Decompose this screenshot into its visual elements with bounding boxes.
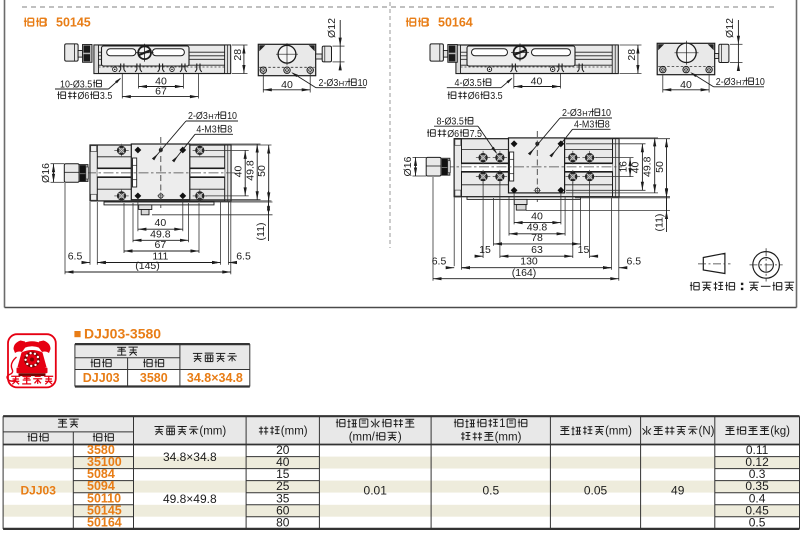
svg-text:DJJ03: DJJ03 [83,371,120,385]
svg-text:Ø12: Ø12 [326,18,338,38]
svg-text:2-Ø3: 2-Ø3 [562,107,582,119]
svg-text:40: 40 [233,166,245,178]
svg-text:DJJ03-3580: DJJ03-3580 [84,326,161,342]
svg-text:34.8×34.8: 34.8×34.8 [187,371,243,385]
svg-text:80: 80 [276,515,290,529]
svg-text:67: 67 [155,239,167,251]
svg-text:50145: 50145 [56,16,91,30]
svg-text:6.5: 6.5 [236,251,251,263]
svg-text:63: 63 [531,244,543,256]
svg-text:H7: H7 [208,112,218,121]
svg-text:50164: 50164 [438,16,473,30]
svg-text:(kg): (kg) [770,426,790,438]
svg-text:49.8: 49.8 [244,160,256,181]
svg-text:8-Ø3.5: 8-Ø3.5 [437,116,464,128]
svg-text:67: 67 [155,86,167,98]
svg-text:50: 50 [654,161,666,173]
svg-text:10: 10 [755,76,765,88]
svg-text:Ø16: Ø16 [402,156,414,176]
svg-text:(mm): (mm) [199,426,226,438]
svg-text:10: 10 [601,107,611,119]
svg-text:Ø6: Ø6 [78,90,90,102]
svg-text:(164): (164) [512,267,537,279]
svg-text:16: 16 [618,161,629,173]
svg-text:3.5: 3.5 [490,90,503,102]
svg-text:15: 15 [479,244,491,256]
svg-text:(145): (145) [135,260,160,272]
svg-text:8: 8 [227,124,232,136]
svg-text:2-Ø3: 2-Ø3 [188,110,208,122]
svg-text:Ø12: Ø12 [724,18,736,38]
svg-text:40: 40 [680,79,692,91]
svg-text:(mm): (mm) [281,426,308,438]
svg-text:28: 28 [232,49,244,61]
svg-text:40: 40 [281,79,293,91]
svg-text:1: 1 [499,418,505,430]
svg-text:3580: 3580 [140,371,168,385]
svg-text:H7: H7 [582,109,592,118]
svg-text:49: 49 [671,483,685,497]
svg-text:50164: 50164 [87,515,122,529]
svg-text:4-Ø3.5: 4-Ø3.5 [455,77,482,89]
svg-text:10: 10 [227,110,237,122]
svg-text:6.5: 6.5 [626,256,641,268]
svg-text:34.8×34.8: 34.8×34.8 [163,450,217,464]
svg-text:49.8: 49.8 [642,156,654,177]
svg-text:49.8×49.8: 49.8×49.8 [163,492,217,506]
svg-text:2-Ø3: 2-Ø3 [716,76,736,88]
svg-text:78: 78 [531,232,543,244]
svg-text:15: 15 [578,244,590,256]
svg-text:(mm): (mm) [495,431,522,443]
svg-text:2-Ø3: 2-Ø3 [319,77,339,89]
svg-text:(11): (11) [255,223,267,241]
svg-text:0.5: 0.5 [749,515,766,529]
svg-text:8: 8 [605,119,610,131]
svg-text:): ) [398,431,402,443]
svg-text:(11): (11) [654,214,666,232]
svg-text:130: 130 [520,256,538,268]
svg-text:0.5: 0.5 [482,483,499,497]
svg-text:28: 28 [626,49,638,61]
svg-text:4-M3: 4-M3 [196,124,216,136]
svg-text:H7: H7 [736,78,746,87]
svg-text:0.01: 0.01 [364,483,388,497]
svg-text:Ø6: Ø6 [468,90,480,102]
svg-text:3.5: 3.5 [100,90,113,102]
svg-text:DJJ03: DJJ03 [21,483,57,497]
svg-text:Ø16: Ø16 [40,163,52,183]
svg-text:6.5: 6.5 [432,256,447,268]
svg-text:10-Ø3.5: 10-Ø3.5 [60,78,92,90]
svg-text:40: 40 [630,162,642,174]
svg-text:(mm/: (mm/ [349,431,376,443]
svg-text:H7: H7 [339,79,349,88]
svg-text:6.5: 6.5 [68,251,83,263]
svg-text:(N): (N) [699,426,715,438]
svg-text:Ø6: Ø6 [447,128,459,140]
svg-text:50: 50 [256,165,268,177]
svg-text:4-M3: 4-M3 [574,119,594,131]
svg-text:40: 40 [531,76,543,88]
svg-text:40: 40 [531,211,543,223]
svg-text:10: 10 [358,77,368,89]
svg-text:(mm): (mm) [605,426,632,438]
svg-text:0.05: 0.05 [584,483,608,497]
